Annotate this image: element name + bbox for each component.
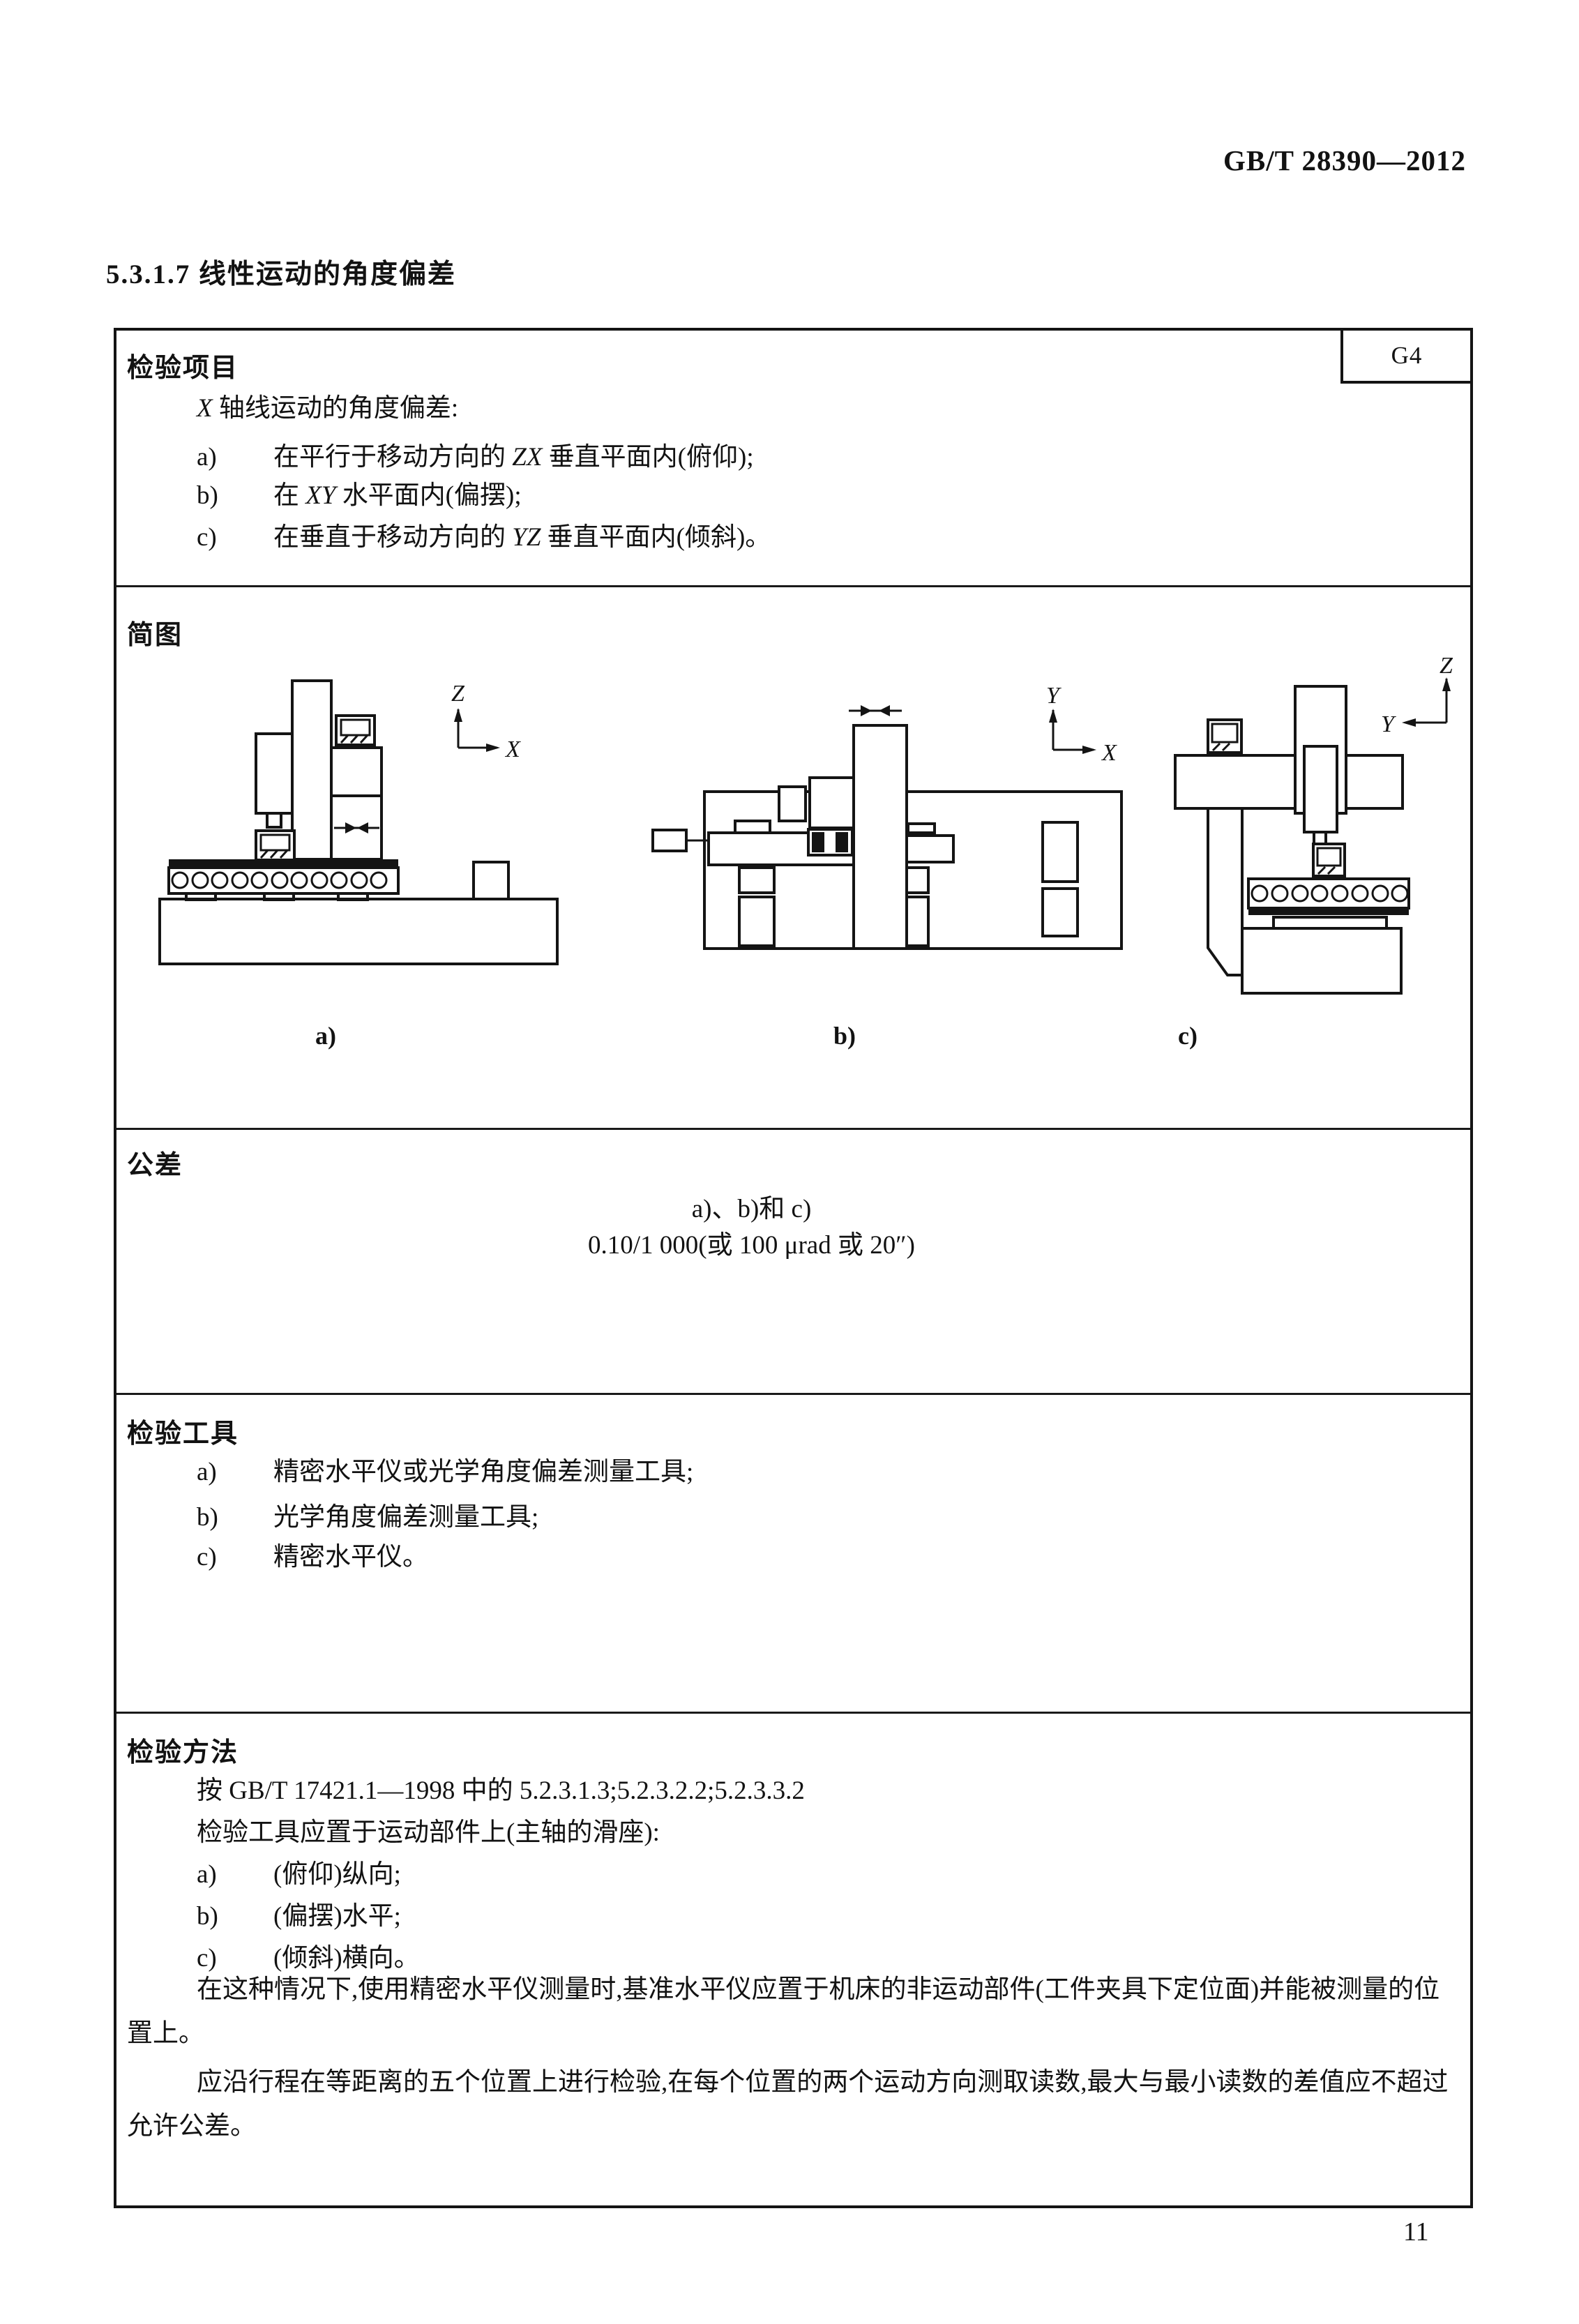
diagram-caption-a: a) bbox=[315, 1021, 336, 1050]
spindle-slide bbox=[1304, 746, 1337, 832]
column bbox=[292, 681, 331, 859]
row-heading-inspection-method: 检验方法 bbox=[127, 1730, 239, 1769]
table-bottom-strip bbox=[1248, 908, 1409, 915]
section-title: 5.3.1.7 线性运动的角度偏差 bbox=[106, 252, 456, 292]
method-reference: 按 GB/T 17421.1—1998 中的 5.2.3.1.3;5.2.3.2… bbox=[197, 1769, 805, 1806]
item-text: 精密水平仪。 bbox=[273, 1543, 428, 1571]
axes-icon: Z Y bbox=[1381, 655, 1453, 737]
inspection-item-intro: X 轴线运动的角度偏差: bbox=[197, 386, 458, 424]
table-foot bbox=[186, 893, 216, 900]
axis-label-y: Y bbox=[1046, 685, 1062, 709]
guide-block bbox=[1043, 822, 1078, 882]
arm-tab bbox=[735, 821, 770, 833]
axis-label-z: Z bbox=[451, 681, 465, 707]
probe-icon bbox=[653, 830, 709, 851]
method-paragraph: 在这种情况下,使用精密水平仪测量时,基准水平仪应置于机床的非运动部件(工件夹具下… bbox=[127, 1968, 1453, 2055]
list-item: b)光学角度偏差测量工具; bbox=[197, 1495, 538, 1533]
column bbox=[1208, 808, 1242, 975]
item-text: 垂直平面内(倾斜)。 bbox=[541, 523, 771, 552]
item-text: 在垂直于移动方向的 bbox=[273, 523, 512, 552]
intro-text: 轴线运动的角度偏差: bbox=[213, 394, 459, 423]
inspection-table: G4 检验项目 X 轴线运动的角度偏差: a)在平行于移动方向的 ZX 垂直平面… bbox=[114, 328, 1473, 2208]
list-item: a)(俯仰)纵向; bbox=[197, 1853, 401, 1890]
list-marker: a) bbox=[197, 1457, 273, 1487]
axis-label-x: X bbox=[504, 737, 521, 762]
list-marker: b) bbox=[197, 1502, 273, 1532]
axis-label-x: X bbox=[1101, 740, 1117, 766]
axis-letters: XY bbox=[305, 481, 335, 510]
list-item: c)精密水平仪。 bbox=[197, 1535, 428, 1573]
diagram-caption-b: b) bbox=[833, 1021, 856, 1050]
tolerance-scope: a)、b)和 c) bbox=[116, 1187, 1387, 1225]
row-heading-inspection-tool: 检验工具 bbox=[127, 1412, 239, 1450]
spindle-head bbox=[256, 734, 292, 813]
doc-standard-number: GB/T 28390—2012 bbox=[1223, 144, 1466, 177]
item-text: 垂直平面内(俯仰); bbox=[542, 443, 753, 471]
machine-base bbox=[1242, 928, 1401, 993]
table-foot bbox=[338, 893, 368, 900]
axis-label-y: Y bbox=[1381, 711, 1396, 737]
axis-letter: X bbox=[197, 394, 213, 423]
axes-icon: Z X bbox=[451, 681, 521, 762]
list-item: b)(偏摆)水平; bbox=[197, 1894, 401, 1932]
arm-tab bbox=[908, 824, 935, 833]
diagram-c-machine-end-view: Z Y bbox=[1173, 655, 1466, 1004]
row-divider bbox=[116, 1128, 1470, 1130]
item-text: (俯仰)纵向; bbox=[273, 1860, 401, 1889]
level-instrument-icon bbox=[256, 831, 294, 863]
spindle-quill bbox=[267, 813, 281, 827]
row-heading-tolerance: 公差 bbox=[127, 1143, 183, 1182]
row-heading-inspection-item: 检验项目 bbox=[127, 346, 239, 384]
cross-beam bbox=[1175, 755, 1403, 808]
list-marker: b) bbox=[197, 481, 273, 511]
axis-letters: ZX bbox=[512, 443, 542, 471]
method-setup: 检验工具应置于运动部件上(主轴的滑座): bbox=[197, 1811, 660, 1848]
list-marker: c) bbox=[197, 1542, 273, 1572]
item-text: 光学角度偏差测量工具; bbox=[273, 1503, 538, 1532]
list-marker: c) bbox=[197, 522, 273, 552]
level-instrument-icon bbox=[1208, 720, 1241, 755]
motion-arrow-icon bbox=[849, 705, 902, 716]
list-item: b)在 XY 水平面内(偏摆); bbox=[197, 474, 522, 511]
table-saddle bbox=[1274, 917, 1387, 928]
worktable bbox=[169, 868, 398, 893]
list-marker: a) bbox=[197, 1859, 273, 1889]
axis-letters: YZ bbox=[512, 523, 541, 552]
row-divider bbox=[116, 1712, 1470, 1714]
guide-block bbox=[739, 897, 774, 946]
table-foot bbox=[264, 893, 294, 900]
item-code: G4 bbox=[1391, 342, 1423, 370]
guide-block bbox=[739, 868, 774, 893]
list-item: a)精密水平仪或光学角度偏差测量工具; bbox=[197, 1450, 693, 1488]
cross-arm-right bbox=[907, 836, 953, 862]
step-block bbox=[810, 778, 854, 828]
item-text: (偏摆)水平; bbox=[273, 1902, 401, 1931]
step-block bbox=[779, 787, 806, 821]
tolerance-value: 0.10/1 000(或 100 μrad 或 20″) bbox=[116, 1223, 1387, 1261]
level-instrument-icon bbox=[808, 829, 852, 855]
level-instrument-icon bbox=[336, 716, 375, 748]
level-instrument-icon bbox=[1313, 844, 1345, 879]
page-number: 11 bbox=[1403, 2217, 1429, 2247]
diagram-b-machine-top-view: Y X bbox=[650, 685, 1128, 957]
row-heading-diagram: 简图 bbox=[127, 613, 183, 651]
diagram-caption-c: c) bbox=[1178, 1021, 1198, 1050]
moving-column bbox=[854, 725, 907, 949]
diagram-a-machine-side-view: Z X bbox=[158, 669, 563, 976]
machine-base bbox=[160, 899, 557, 964]
ram-slide bbox=[331, 748, 381, 859]
list-item: a)在平行于移动方向的 ZX 垂直平面内(俯仰); bbox=[197, 435, 754, 473]
axes-icon: Y X bbox=[1046, 685, 1117, 766]
item-code-box: G4 bbox=[1340, 331, 1470, 384]
block-on-base bbox=[474, 862, 508, 899]
axis-label-z: Z bbox=[1440, 655, 1453, 679]
item-text: 精密水平仪或光学角度偏差测量工具; bbox=[273, 1458, 693, 1486]
row-divider bbox=[116, 1393, 1470, 1395]
item-text: 在 bbox=[273, 481, 305, 510]
list-item: c)在垂直于移动方向的 YZ 垂直平面内(倾斜)。 bbox=[197, 515, 771, 553]
row-divider bbox=[116, 585, 1470, 587]
guide-block bbox=[1043, 889, 1078, 936]
guide-block bbox=[906, 868, 928, 893]
guide-block bbox=[906, 897, 928, 946]
list-marker: a) bbox=[197, 442, 273, 472]
method-paragraph: 应沿行程在等距离的五个位置上进行检验,在每个位置的两个运动方向测取读数,最大与最… bbox=[127, 2060, 1453, 2148]
item-text: 水平面内(偏摆); bbox=[335, 481, 521, 510]
list-marker: b) bbox=[197, 1901, 273, 1931]
item-text: 在平行于移动方向的 bbox=[273, 443, 512, 471]
